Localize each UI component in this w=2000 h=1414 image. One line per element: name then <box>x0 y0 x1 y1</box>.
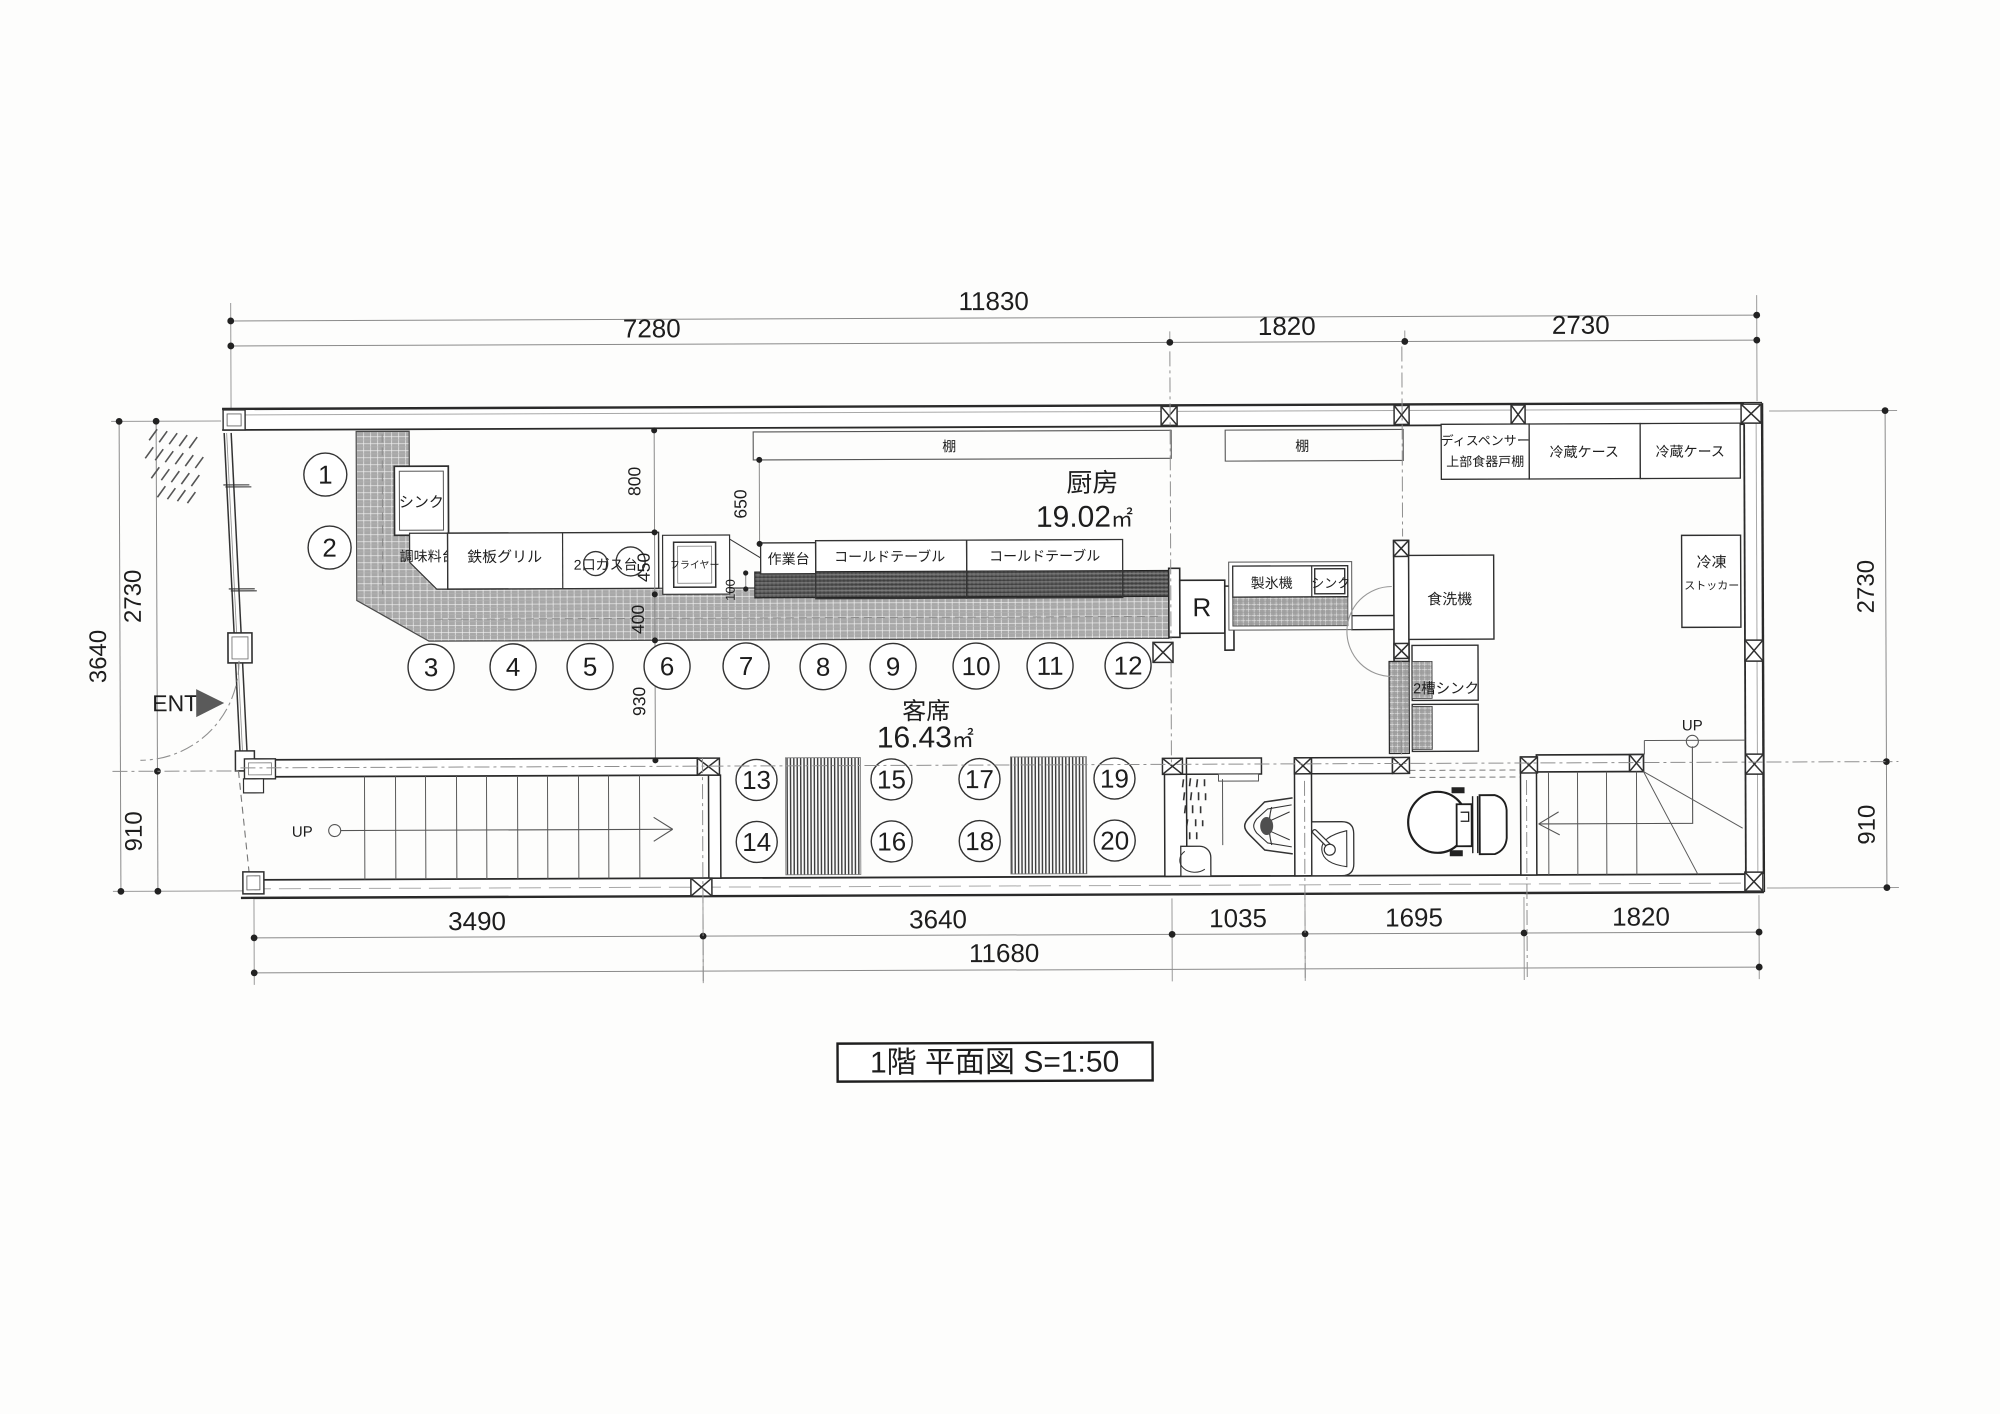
svg-text:4: 4 <box>506 652 521 682</box>
svg-text:コールドテーブル: コールドテーブル <box>834 548 945 564</box>
svg-text:1035: 1035 <box>1209 903 1267 933</box>
svg-text:400: 400 <box>628 604 648 634</box>
svg-text:5: 5 <box>583 652 598 682</box>
svg-text:910: 910 <box>1854 805 1881 845</box>
svg-text:1階 平面図 S=1:50: 1階 平面図 S=1:50 <box>870 1046 1119 1080</box>
svg-text:19.02㎡: 19.02㎡ <box>1036 500 1133 533</box>
svg-text:2730: 2730 <box>1853 560 1880 613</box>
svg-text:17: 17 <box>965 764 994 794</box>
svg-text:16.43㎡: 16.43㎡ <box>877 721 974 754</box>
svg-text:13: 13 <box>742 765 771 795</box>
svg-text:11680: 11680 <box>969 938 1039 968</box>
svg-text:鉄板グリル: 鉄板グリル <box>467 548 542 566</box>
svg-text:製氷機: 製氷機 <box>1251 575 1293 591</box>
svg-text:15: 15 <box>877 764 906 794</box>
svg-text:棚: 棚 <box>942 438 956 454</box>
svg-text:12: 12 <box>1114 650 1143 680</box>
svg-text:650: 650 <box>730 489 750 519</box>
svg-text:930: 930 <box>629 686 649 716</box>
svg-text:2: 2 <box>322 533 337 563</box>
svg-text:19: 19 <box>1100 764 1129 794</box>
svg-text:3640: 3640 <box>909 904 967 934</box>
svg-text:コールドテーブル: コールドテーブル <box>989 548 1100 564</box>
svg-text:1: 1 <box>318 460 333 490</box>
svg-text:UP: UP <box>292 824 313 841</box>
svg-text:冷凍: 冷凍 <box>1697 554 1727 571</box>
svg-text:3640: 3640 <box>85 630 112 683</box>
svg-text:フライヤー: フライヤー <box>670 559 720 571</box>
svg-text:20: 20 <box>1100 826 1129 856</box>
svg-text:ENT: ENT <box>152 690 198 716</box>
svg-text:6: 6 <box>660 651 675 681</box>
svg-text:14: 14 <box>742 827 771 857</box>
svg-text:棚: 棚 <box>1295 438 1309 454</box>
svg-text:8: 8 <box>816 652 831 682</box>
svg-text:シンク: シンク <box>399 494 444 511</box>
svg-text:ストッカー: ストッカー <box>1684 579 1739 592</box>
svg-text:3: 3 <box>424 652 439 682</box>
svg-text:冷蔵ケース: 冷蔵ケース <box>1550 444 1619 460</box>
svg-text:2730: 2730 <box>120 570 147 623</box>
svg-text:2730: 2730 <box>1552 310 1610 340</box>
svg-text:ディスペンサー: ディスペンサー <box>1441 433 1530 448</box>
svg-text:作業台: 作業台 <box>768 551 810 567</box>
svg-text:1820: 1820 <box>1612 901 1670 931</box>
svg-text:2槽シンク: 2槽シンク <box>1413 680 1479 697</box>
svg-text:11830: 11830 <box>958 286 1028 316</box>
svg-text:9: 9 <box>886 651 901 681</box>
svg-text:10: 10 <box>962 651 991 681</box>
svg-text:800: 800 <box>624 467 644 497</box>
svg-text:R: R <box>1192 592 1211 622</box>
svg-text:16: 16 <box>877 826 906 856</box>
svg-text:3490: 3490 <box>448 906 506 936</box>
svg-text:7: 7 <box>739 651 754 681</box>
svg-text:食洗機: 食洗機 <box>1427 591 1472 608</box>
svg-text:1695: 1695 <box>1385 902 1443 932</box>
svg-text:7280: 7280 <box>623 313 681 343</box>
svg-text:1820: 1820 <box>1258 311 1316 341</box>
svg-text:18: 18 <box>965 826 994 856</box>
svg-text:冷蔵ケース: 冷蔵ケース <box>1656 443 1725 459</box>
svg-text:910: 910 <box>121 811 148 851</box>
svg-text:シンク: シンク <box>1311 576 1350 591</box>
svg-text:11: 11 <box>1037 651 1064 681</box>
svg-text:上部食器戸棚: 上部食器戸棚 <box>1446 454 1524 469</box>
svg-text:450: 450 <box>634 552 654 582</box>
svg-text:100: 100 <box>723 579 738 601</box>
svg-text:厨房: 厨房 <box>1066 468 1118 498</box>
svg-text:UP: UP <box>1682 717 1703 734</box>
